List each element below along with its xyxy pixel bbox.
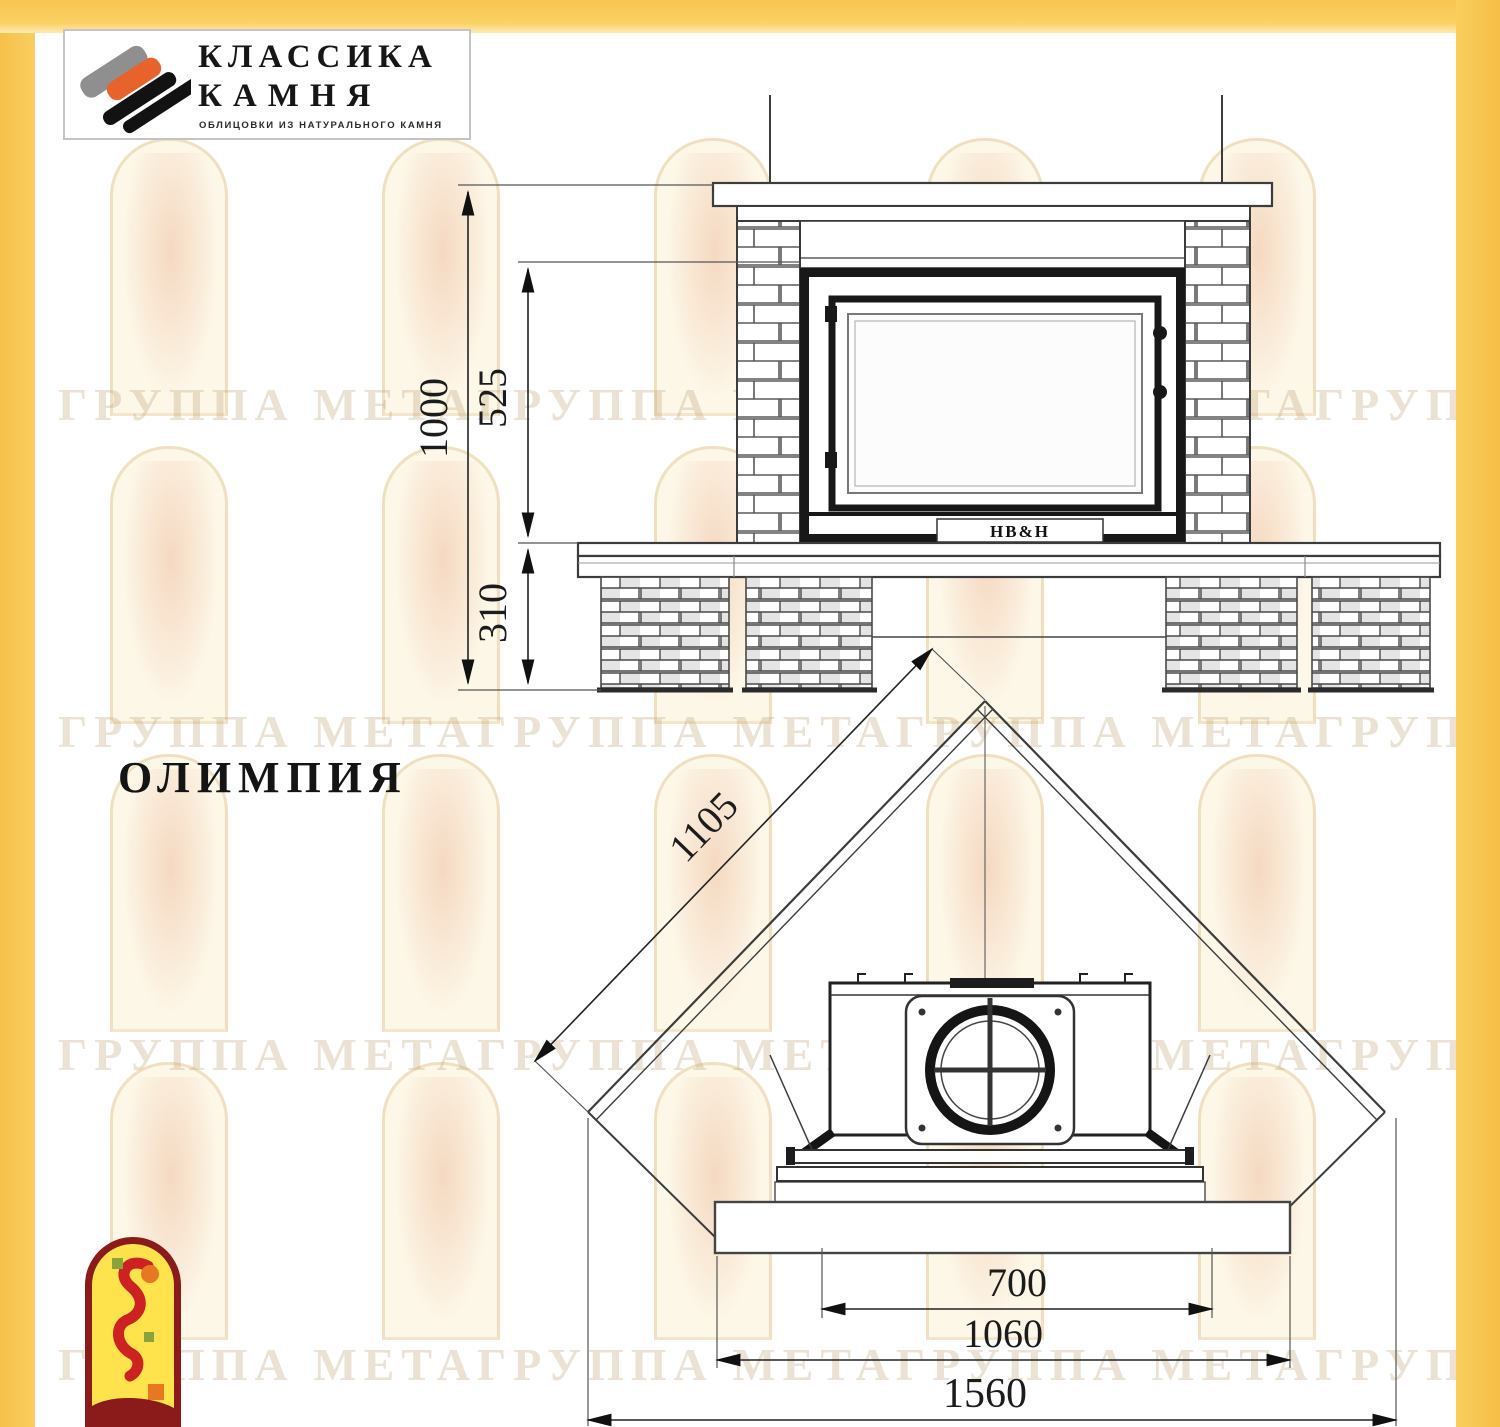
flue-collar bbox=[950, 978, 1034, 988]
page-frame-left bbox=[0, 0, 35, 1427]
dim-hearth-width: 1060 bbox=[963, 1311, 1043, 1356]
front-rail-1 bbox=[793, 1150, 1187, 1163]
lintel bbox=[800, 221, 1185, 268]
mascot-emblem-icon bbox=[85, 1237, 181, 1427]
hearth-step bbox=[775, 1182, 1205, 1202]
brick-pillar-left bbox=[737, 221, 800, 543]
dim-overall-width: 1560 bbox=[943, 1371, 1027, 1417]
front-rail-2 bbox=[777, 1167, 1203, 1181]
logo-subtitle: ОБЛИЦОВКИ ИЗ НАТУРАЛЬНОГО КАМНЯ bbox=[199, 120, 443, 131]
door-handle-top bbox=[825, 306, 837, 322]
dim-side-diagonal: 1105 bbox=[660, 783, 747, 871]
dim-total-height: 1000 bbox=[411, 378, 456, 458]
model-name: ОЛИМПИЯ bbox=[118, 752, 408, 803]
hearth-shelf bbox=[578, 543, 1440, 577]
firebox-glass bbox=[848, 314, 1142, 493]
door-hinge-bottom bbox=[1153, 385, 1167, 399]
logo-title-line2: КАМНЯ bbox=[198, 78, 381, 115]
front-view: НВ&Н bbox=[411, 95, 1440, 690]
logo-stripes-icon bbox=[73, 35, 191, 135]
mantel-molding bbox=[737, 206, 1250, 221]
dim-firebox-height: 525 bbox=[470, 368, 515, 428]
mantel-shelf bbox=[713, 183, 1272, 206]
company-logo: КЛАССИКА КАМНЯ ОБЛИЦОВКИ ИЗ НАТУРАЛЬНОГО… bbox=[63, 29, 471, 140]
insert-plan bbox=[770, 974, 1210, 1181]
page-frame-right bbox=[1456, 0, 1500, 1427]
hearth-slab bbox=[715, 1202, 1290, 1253]
firebox-insert: НВ&Н bbox=[805, 273, 1182, 543]
door-hinge-top bbox=[1153, 326, 1167, 340]
plan-view: 1105 700 1060 1560 bbox=[535, 649, 1396, 1426]
brick-pedestals bbox=[601, 577, 1430, 688]
catalog-page: ГРУППА МЕТАГРУППА МЕТАГРУППА МЕТАГРУППА … bbox=[0, 0, 1500, 1427]
door-handle-bottom bbox=[825, 452, 837, 468]
brick-pillar-right bbox=[1185, 221, 1250, 543]
dim-base-height: 310 bbox=[470, 583, 515, 643]
logo-title-line1: КЛАССИКА bbox=[198, 39, 438, 76]
technical-drawing: НВ&Н bbox=[0, 0, 1500, 1427]
dim-opening-width: 700 bbox=[987, 1260, 1047, 1305]
insert-brand-label: НВ&Н bbox=[990, 522, 1050, 541]
